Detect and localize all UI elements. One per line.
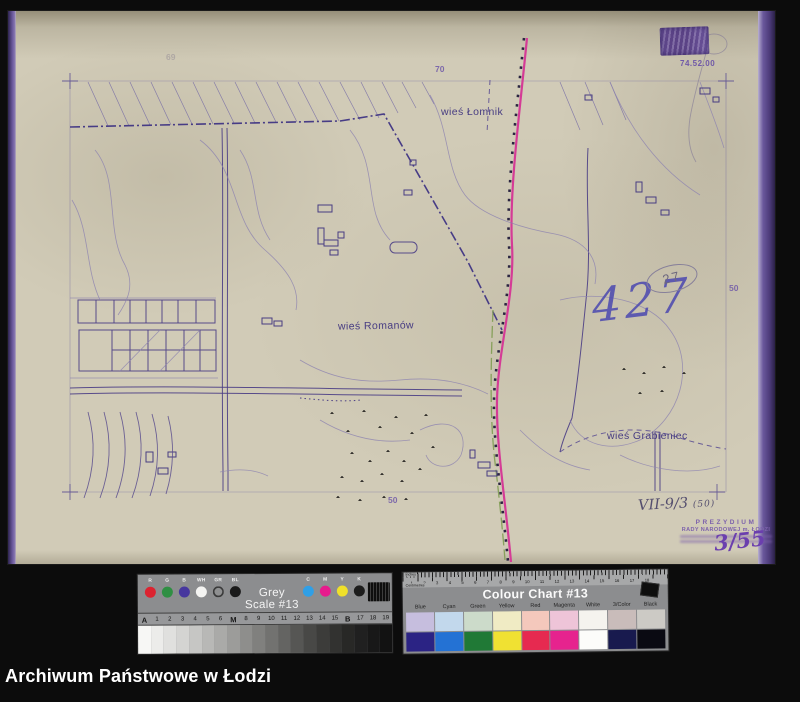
calibration-dots-row: R G B WH GR BL Grey Sca [142,577,390,612]
road-vertical [222,128,223,491]
colour-swatches [406,609,665,651]
dot-green: G [159,579,176,603]
top-right-number: 74.52.00 [680,59,715,68]
yellow-dot-icon [337,585,348,596]
dot-key-black: K [351,577,368,601]
village-label-romanow: wieś Romanów [338,319,414,332]
grey-step [214,625,227,653]
swatch-saturated [580,630,608,649]
village-label-grabieniec: wieś Grabieniec [607,430,688,442]
grey-step [240,625,253,653]
grey-step [316,625,329,653]
grey-scale-steps [138,623,392,654]
swatch-saturated [522,631,550,650]
green-dot-icon [162,587,173,598]
sheet-number-top-left: 69 [166,52,175,62]
magenta-dot-icon [320,586,331,597]
pond [390,242,417,253]
purple-stamp-patch [660,26,710,56]
grey-dot-icon [213,586,224,597]
grey-step [367,624,380,652]
reference-code-suffix: (50) [693,499,716,510]
reference-code-main: VII-9/3 [638,495,689,514]
swatch-saturated [493,631,521,650]
white-dot-icon [196,586,207,597]
swatch-pastel [637,609,665,628]
grey-step [189,625,202,653]
blue-dot-icon [179,586,190,597]
swatch-pastel [435,612,463,631]
grey-step [176,625,189,653]
swatch-saturated [435,632,463,651]
black-dot-icon [230,586,241,597]
dot-magenta: M [317,578,334,602]
grey-step [379,624,392,652]
grey-step [291,625,304,653]
road-right [560,148,589,452]
colour-chart-card: 1 2 3 4 5 6 7 8 9 10 11 12 13 14 15 16 1… [403,569,669,653]
map-sheet: wieś Łomnik wieś Romanów wieś Grabieniec… [8,11,775,564]
cadastral-grid [78,300,216,371]
swatch-pastel [493,611,521,630]
swatch-pastel [464,612,492,631]
dot-blue: B [176,578,193,602]
village-label-lomnik: wieś Łomnik [441,106,503,118]
ruler-label-centimetres: Centimetres [405,583,426,587]
grey-step [341,624,354,652]
key-dot-icon [354,585,365,596]
grey-step [354,624,367,652]
swatch-saturated [551,630,579,649]
road-horizontal [70,387,462,390]
red-dot-icon [145,587,156,598]
grey-scale-title: Grey Scale #13 [244,578,300,611]
grey-step [227,625,240,653]
field-strip-hatching [88,82,626,130]
cyan-dot-icon [303,586,314,597]
grey-step [329,625,342,653]
sheet-number-bottom: 50 [388,495,397,505]
dot-yellow: Y [334,577,351,601]
sheet-number-top: 70 [435,64,444,74]
ruler-label-inches: Inches [405,572,417,576]
grey-step [138,626,151,654]
swatch-saturated [406,632,434,651]
handwritten-stamp-fraction: 3/55 [713,525,767,555]
grey-scale-card: R G B WH GR BL Grey Sca [138,573,392,654]
swatch-pastel [522,611,550,630]
archive-stamp: PREZYDIUM RADY NARODOWEJ m. ŁODZI 3/55 [672,519,780,543]
grey-step [278,625,291,653]
black-reference-patch [640,582,660,598]
dot-black: BL [227,578,244,602]
grey-step [265,625,278,653]
dot-red: R [142,579,159,603]
grey-step [163,626,176,654]
swatch-saturated [608,630,636,649]
grey-step [303,625,316,653]
curved-field-strips [84,412,173,498]
grey-step [202,625,215,653]
swatch-pastel [608,610,636,629]
archive-name-title: Archiwum Państwowe w Łodzi [5,666,271,687]
dot-white: WH [193,578,210,602]
grey-step [151,626,164,654]
grey-step [252,625,265,653]
dot-grey: GR [210,578,227,602]
swatch-pastel [550,610,578,629]
sheet-number-right: 50 [729,283,738,293]
swatch-pastel [579,610,607,629]
swatch-pastel [406,612,434,631]
swatch-saturated [637,629,665,648]
barcode-patch [368,582,390,601]
dot-cyan: C [300,578,317,602]
swatch-saturated [464,632,492,651]
colour-chart-title: Colour Chart #13 [403,585,668,602]
